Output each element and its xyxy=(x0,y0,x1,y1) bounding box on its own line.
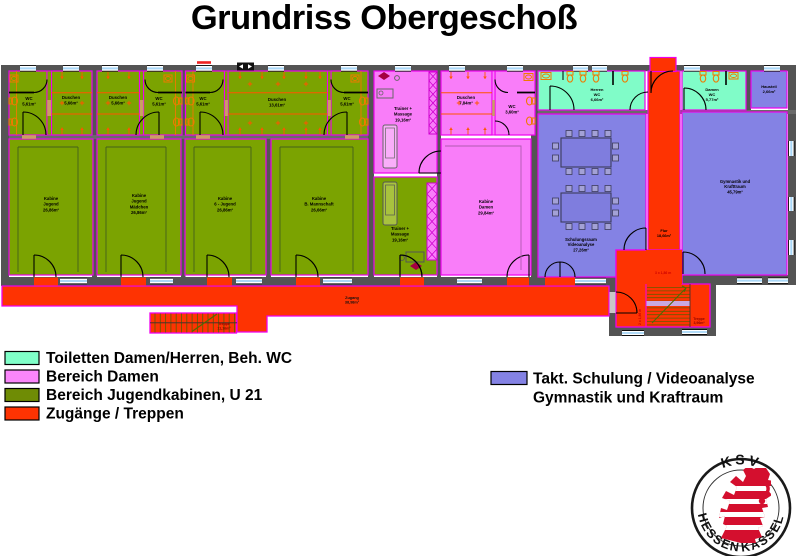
svg-text:Takt. Schulung / Videoanalyse: Takt. Schulung / Videoanalyse xyxy=(533,371,755,388)
svg-text:Duschen5,66m²: Duschen5,66m² xyxy=(62,95,81,106)
svg-text:Duschen7,84m²: Duschen7,84m² xyxy=(457,95,476,106)
svg-text:Treppe11,16m²: Treppe11,16m² xyxy=(217,322,231,330)
svg-text:KabineDamen29,84m²: KabineDamen29,84m² xyxy=(478,199,495,215)
svg-text:Duschen5,66m²: Duschen5,66m² xyxy=(109,95,128,106)
svg-text:Bereich Jugendkabinen, U 21: Bereich Jugendkabinen, U 21 xyxy=(46,387,263,404)
svg-text:Trainer +Massage19,16m²: Trainer +Massage19,16m² xyxy=(394,106,413,122)
svg-text:Zugang38,98m²: Zugang38,98m² xyxy=(345,296,360,305)
svg-text:Hausteil2,66m²: Hausteil2,66m² xyxy=(761,84,777,94)
svg-text:Zugänge / Treppen: Zugänge / Treppen xyxy=(46,406,184,423)
svg-text:Grundriss Obergeschoß: Grundriss Obergeschoß xyxy=(191,0,578,37)
svg-text:3 x 1,86 m: 3 x 1,86 m xyxy=(655,271,671,275)
svg-text:Trainer +Massage19,16m²: Trainer +Massage19,16m² xyxy=(391,226,410,242)
svg-text:Toiletten Damen/Herren, Beh. W: Toiletten Damen/Herren, Beh. WC xyxy=(46,350,292,367)
svg-text:Treppe3,96m²: Treppe3,96m² xyxy=(693,317,705,325)
svg-text:Gymnastik und Kraftraum: Gymnastik und Kraftraum xyxy=(533,390,723,407)
svg-text:Bereich Damen: Bereich Damen xyxy=(46,369,159,386)
svg-text:KabineJugend26,86m²: KabineJugend26,86m² xyxy=(43,196,60,212)
svg-text:KabineJugendMädchen26,86m²: KabineJugendMädchen26,86m² xyxy=(130,193,149,215)
svg-text:2 x 1,86 m: 2 x 1,86 m xyxy=(638,309,642,325)
svg-text:Duschen13,61m²: Duschen13,61m² xyxy=(268,97,287,108)
